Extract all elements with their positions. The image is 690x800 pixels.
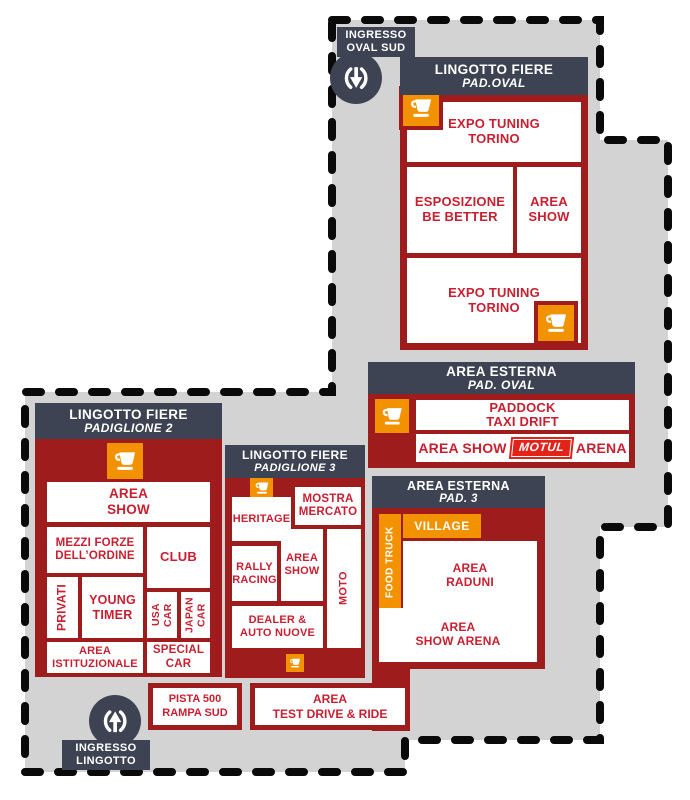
room-japan-car: JAPAN CAR [181, 592, 210, 638]
esterna-oval-title: AREA ESTERNA [446, 364, 557, 379]
room-area-show-motul-arena: AREA SHOW MOTUL ARENA [416, 434, 629, 462]
room-moto: MOTO [327, 529, 361, 648]
room-area-show-arena: AREA SHOW ARENA [379, 608, 537, 662]
coffee-cup-icon [534, 301, 578, 345]
box-pista-500-rampa-sud: PISTA 500 RAMPA SUD [148, 683, 242, 730]
entrance-oval-sud-label: INGRESSO OVAL SUD [337, 27, 415, 57]
entrance-label-line: OVAL SUD [346, 42, 405, 55]
esterna-oval-header: AREA ESTERNA PAD. OVAL [368, 362, 635, 394]
room-mezzi-forze: MEZZI FORZE DELL’ORDINE [47, 527, 143, 573]
pad2-title: LINGOTTO FIERE [69, 407, 188, 422]
esterna-pad3-subtitle: PAD. 3 [439, 493, 478, 506]
room-usa-car: USA CAR [147, 592, 177, 638]
entrance-label-line: LINGOTTO [76, 755, 136, 768]
room-area-show-oval: AREA SHOW [517, 167, 581, 253]
pad2-block: AREA SHOW MEZZI FORZE DELL’ORDINE CLUB P… [35, 439, 222, 677]
pad-oval-subtitle: PAD.OVAL [462, 77, 525, 90]
pad3-block: HERITAGE MOSTRA MERCATO RALLY RACING ARE… [225, 478, 365, 678]
pad-oval-block: EXPO TUNING TORINO ESPOSIZIONE BE BETTER… [400, 95, 588, 350]
room-young-timer: YOUNG TIMER [82, 577, 143, 638]
strip-food-truck: FOOD TRUCK [379, 514, 401, 611]
entrance-label-line: INGRESSO [75, 742, 136, 755]
room-dealer-auto-nuove: DEALER & AUTO NUOVE [232, 606, 323, 648]
esterna-pad3-block: FOOD TRUCK VILLAGE AREA RADUNI AREA SHOW… [372, 508, 545, 669]
strip-village: VILLAGE [403, 514, 481, 538]
room-privati: PRIVATI [47, 577, 78, 638]
room-area-show-pad2: AREA SHOW [47, 482, 210, 522]
coffee-cup-icon [284, 652, 306, 674]
entrance-label-line: INGRESSO [345, 29, 406, 42]
esterna-oval-block: PADDOCK TAXI DRIFT AREA SHOW MOTUL ARENA [368, 394, 635, 468]
pad3-title: LINGOTTO FIERE [242, 449, 348, 462]
entrance-oval-sud-icon [330, 52, 382, 104]
coffee-cup-icon [107, 443, 143, 479]
room-esposizione-be-better: ESPOSIZIONE BE BETTER [407, 167, 513, 253]
pad2-header: LINGOTTO FIERE PADIGLIONE 2 [35, 403, 222, 439]
esterna-pad3-header: AREA ESTERNA PAD. 3 [372, 476, 545, 508]
motul-logo: MOTUL [511, 439, 572, 457]
room-special-car: SPECIAL CAR [147, 642, 210, 673]
coffee-cup-icon [375, 399, 409, 433]
entrance-arrows-icon [339, 61, 373, 95]
room-area-raduni: AREA RADUNI [403, 541, 537, 611]
entrance-arrows-icon [98, 704, 132, 738]
pad2-subtitle: PADIGLIONE 2 [84, 422, 173, 435]
pad-oval-header: LINGOTTO FIERE PAD.OVAL [400, 57, 588, 95]
pad3-subtitle: PADIGLIONE 3 [254, 462, 336, 474]
room-mostra-mercato: MOSTRA MERCATO [295, 487, 361, 525]
room-club: CLUB [147, 527, 210, 588]
venue-map: INGRESSO OVAL SUD LINGOTTO FIERE PAD.OVA… [0, 0, 690, 800]
entrance-lingotto-label: INGRESSO LINGOTTO [62, 740, 150, 770]
room-area-show-pad3: AREA SHOW [281, 529, 323, 601]
pad3-header: LINGOTTO FIERE PADIGLIONE 3 [225, 445, 365, 478]
room-area-istituzionale: AREA ISTITUZIONALE [47, 642, 143, 673]
esterna-pad3-title: AREA ESTERNA [407, 479, 510, 493]
esterna-oval-subtitle: PAD. OVAL [468, 379, 535, 392]
room-paddock-taxi-drift: PADDOCK TAXI DRIFT [416, 400, 629, 430]
pad-oval-title: LINGOTTO FIERE [435, 62, 554, 77]
box-area-test-drive-ride: AREA TEST DRIVE & RIDE [250, 683, 410, 730]
room-rally-racing: RALLY RACING [232, 546, 277, 601]
